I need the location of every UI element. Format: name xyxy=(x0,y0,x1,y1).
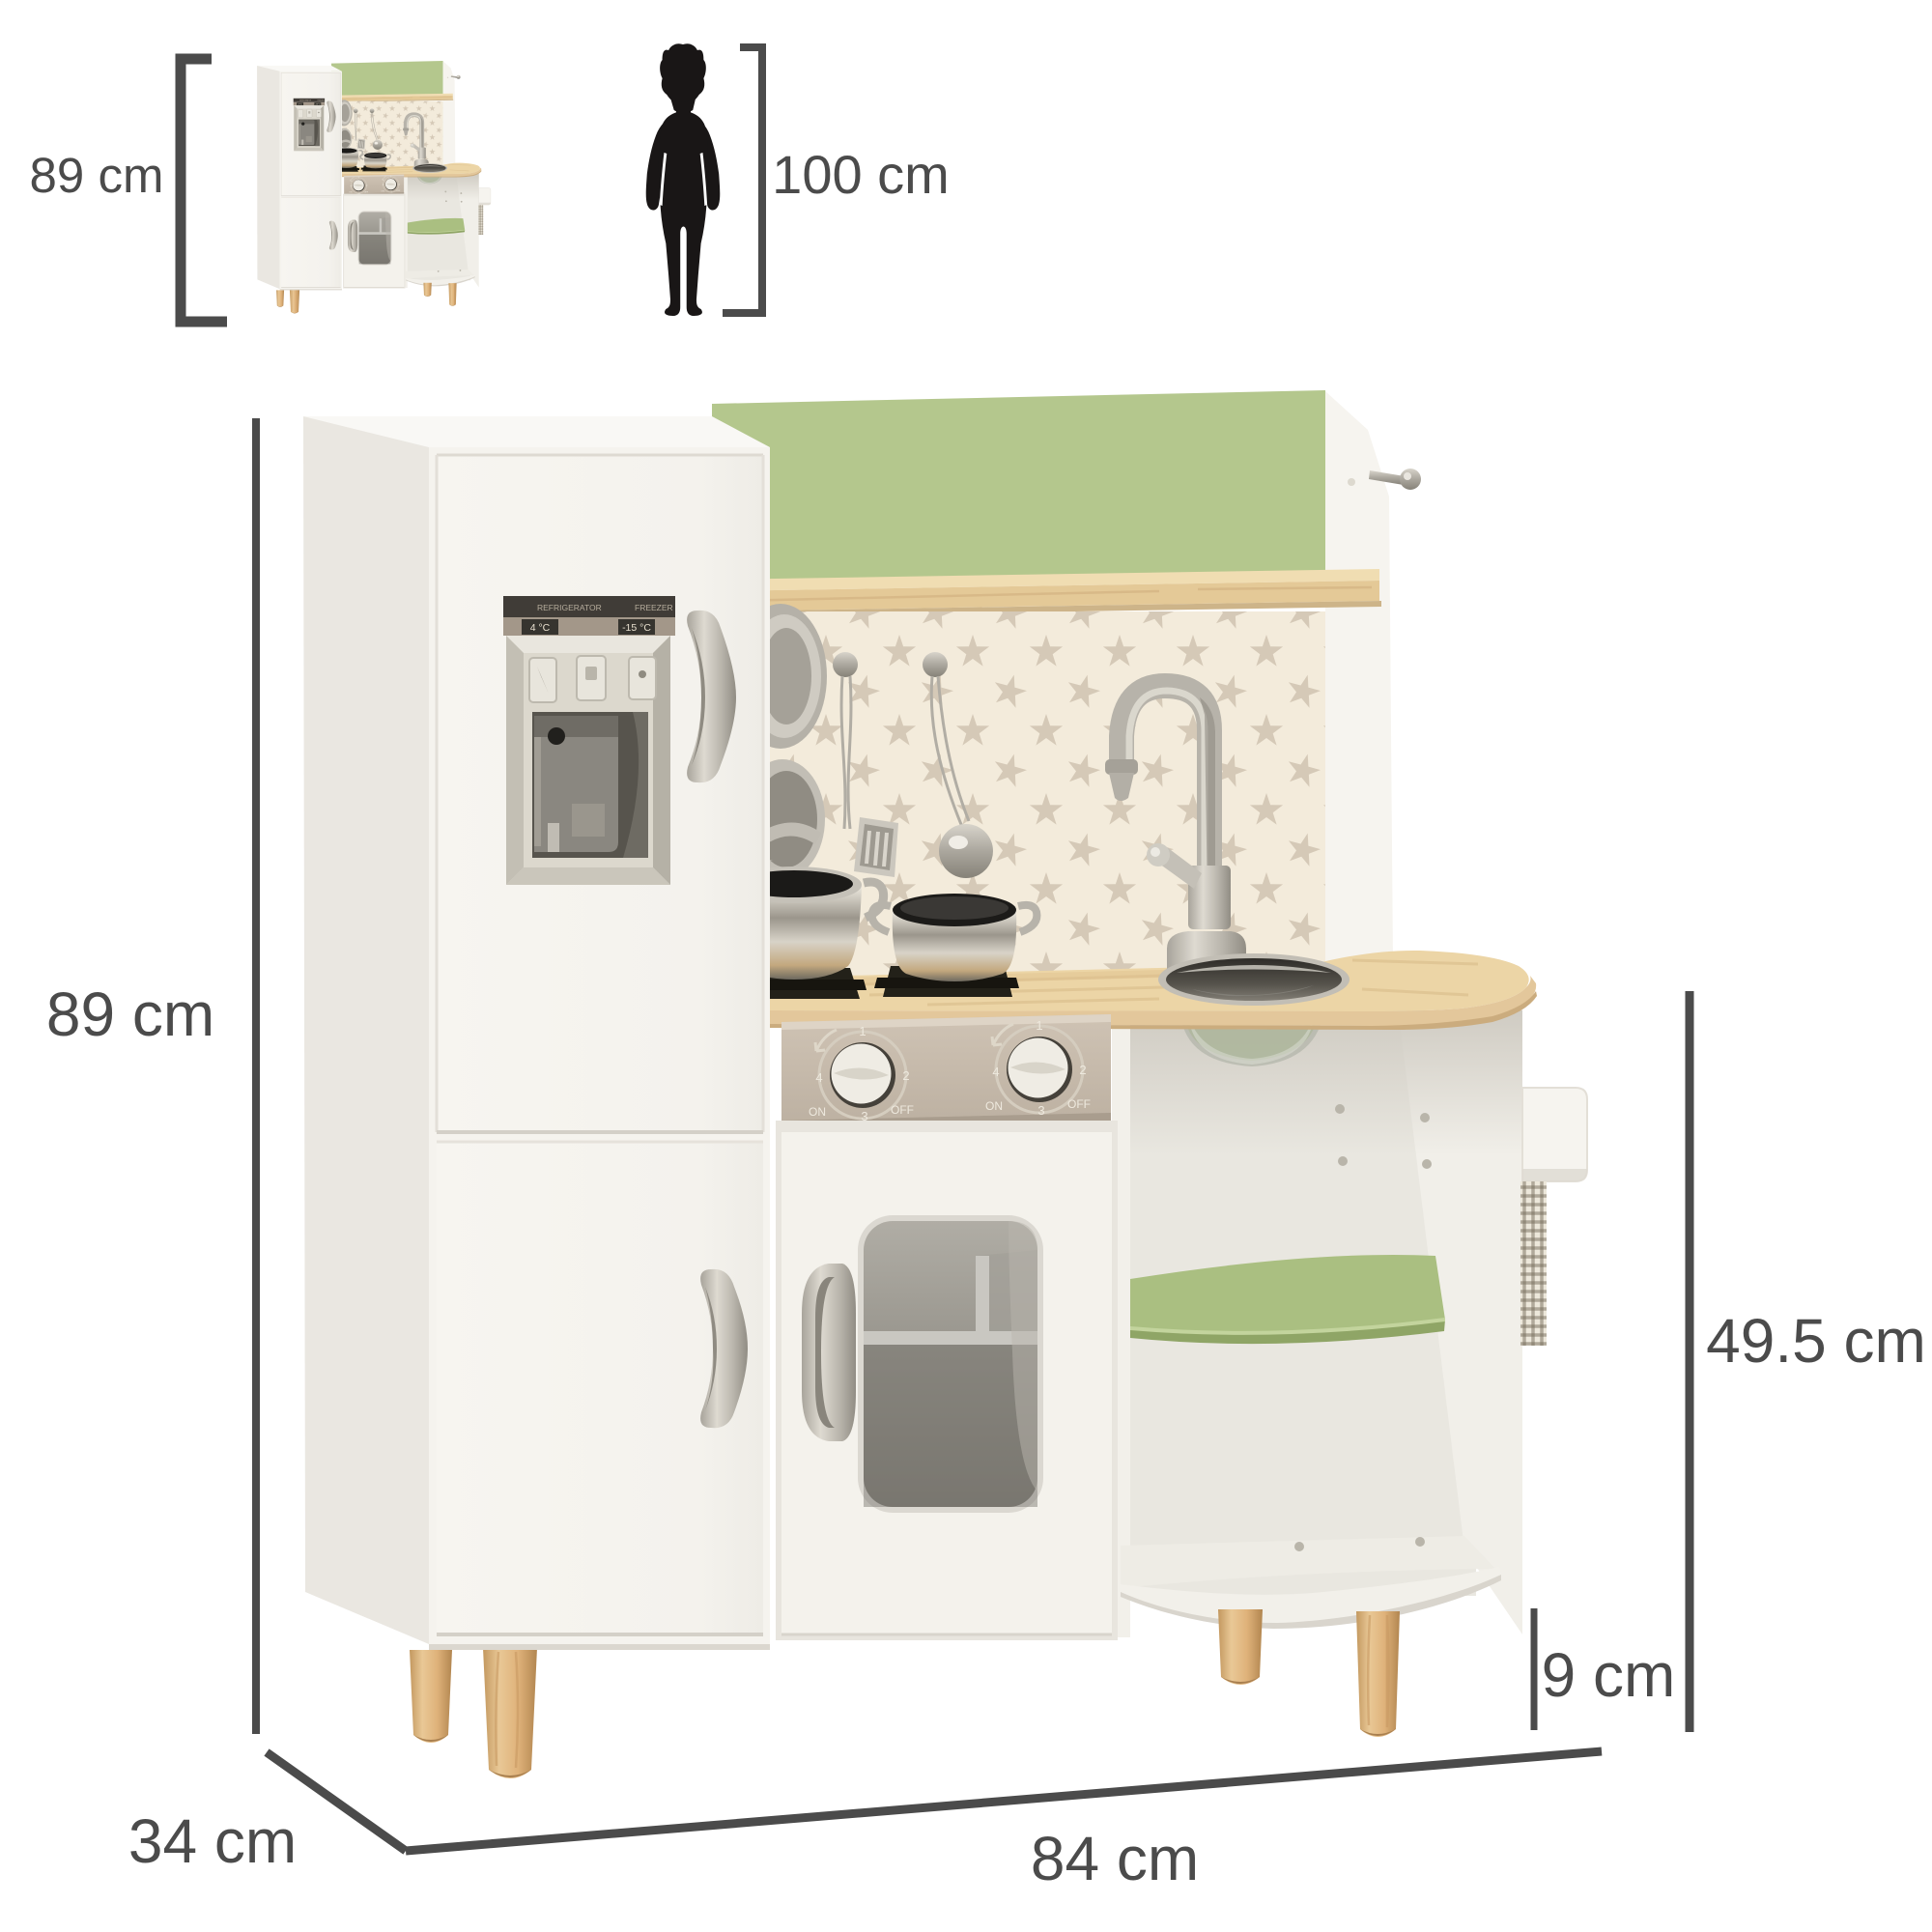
svg-text:-15 °C: -15 °C xyxy=(622,622,651,634)
svg-text:4: 4 xyxy=(992,1065,999,1079)
svg-text:89 cm: 89 cm xyxy=(30,148,164,203)
svg-text:4: 4 xyxy=(815,1070,822,1085)
svg-text:84 cm: 84 cm xyxy=(1031,1824,1199,1893)
svg-text:1: 1 xyxy=(859,1024,866,1038)
svg-text:3: 3 xyxy=(1037,1103,1044,1118)
svg-text:ON: ON xyxy=(809,1105,826,1119)
svg-text:2: 2 xyxy=(902,1068,909,1083)
svg-text:FREEZER: FREEZER xyxy=(635,603,673,612)
svg-text:ON: ON xyxy=(985,1099,1003,1113)
svg-text:9 cm: 9 cm xyxy=(1542,1640,1676,1710)
svg-text:REFRIGERATOR: REFRIGERATOR xyxy=(537,603,602,612)
svg-text:2: 2 xyxy=(1079,1063,1086,1077)
svg-text:89 cm: 89 cm xyxy=(46,980,214,1049)
svg-text:49.5 cm: 49.5 cm xyxy=(1706,1306,1926,1376)
svg-text:OFF: OFF xyxy=(1067,1097,1091,1111)
svg-text:1: 1 xyxy=(1036,1018,1042,1033)
svg-text:34 cm: 34 cm xyxy=(128,1806,297,1876)
svg-text:100 cm: 100 cm xyxy=(772,144,950,205)
svg-text:OFF: OFF xyxy=(891,1103,914,1117)
svg-text:4 °C: 4 °C xyxy=(530,622,551,634)
